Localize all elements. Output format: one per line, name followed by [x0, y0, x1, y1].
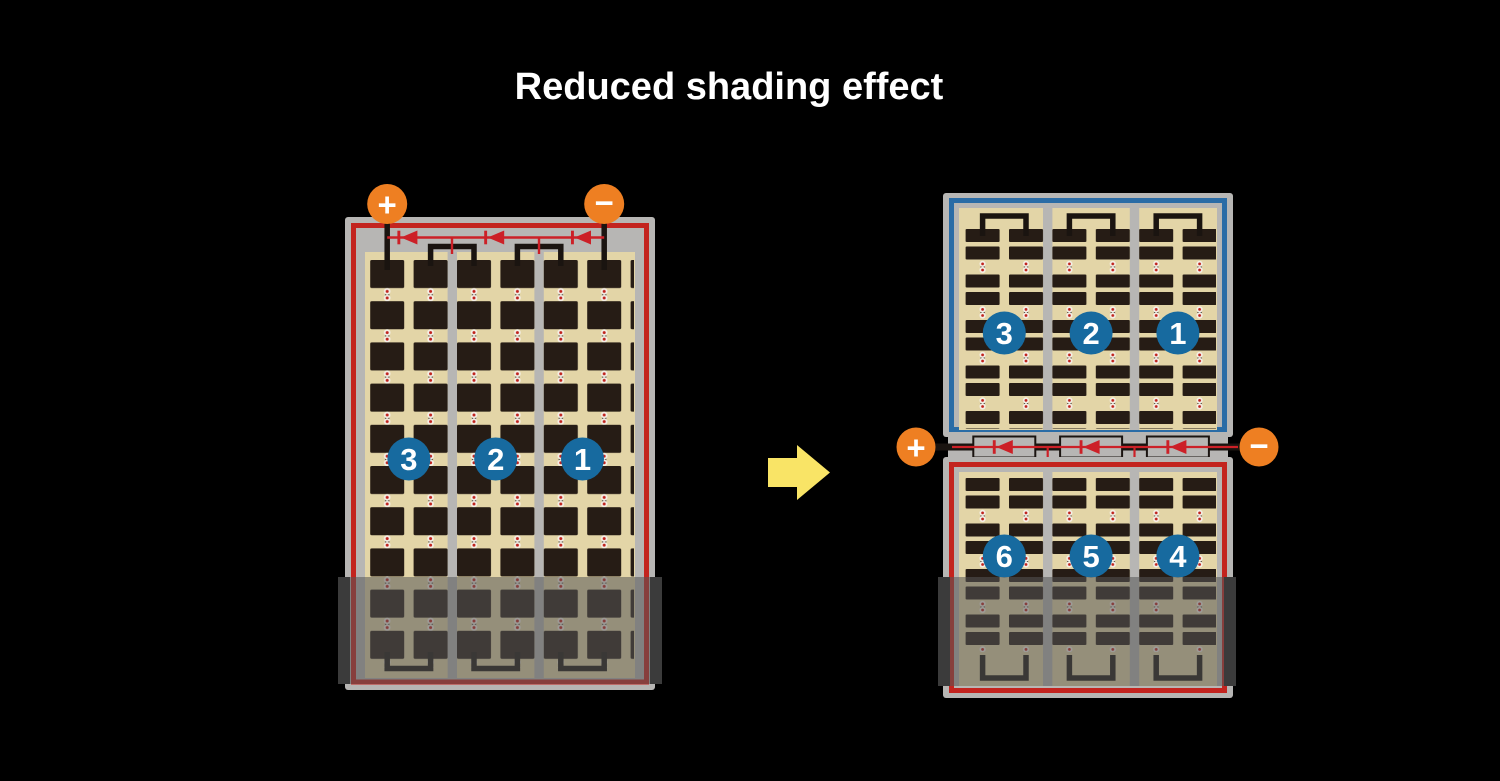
shade-overlay — [338, 577, 662, 684]
badge-label: 6 — [996, 539, 1013, 574]
group-number-badge: 5 — [1070, 535, 1113, 578]
group-number-badge: 3 — [387, 438, 430, 481]
group-number-badge: 4 — [1156, 535, 1199, 578]
minus-sign: − — [1249, 427, 1268, 464]
plus-sign: + — [378, 186, 397, 223]
group-number-badge: 2 — [1070, 312, 1113, 355]
half-cell-module-top: 3 2 1 — [943, 193, 1233, 437]
badge-label: 5 — [1082, 539, 1099, 574]
group-number-badge: 1 — [561, 438, 604, 481]
group-number-badge: 6 — [983, 535, 1026, 578]
full-cell-module: + − 3 2 1 — [338, 184, 662, 690]
badge-label: 1 — [574, 442, 591, 477]
group-number-badge: 2 — [474, 438, 517, 481]
badge-label: 2 — [487, 442, 504, 477]
badge-label: 3 — [996, 316, 1013, 351]
diode-strip — [934, 433, 1242, 460]
shading-diagram: + − 3 2 1 — [0, 0, 1500, 781]
half-cell-module-bottom: 6 5 4 — [938, 457, 1236, 698]
badge-label: 4 — [1169, 539, 1187, 574]
plus-terminal: + — [367, 184, 407, 224]
plus-terminal: + — [897, 428, 936, 467]
plus-sign: + — [906, 429, 925, 466]
badge-label: 3 — [400, 442, 417, 477]
group-number-badge: 3 — [983, 312, 1026, 355]
badge-label: 1 — [1169, 316, 1186, 351]
minus-terminal: − — [584, 184, 624, 224]
group-number-badge: 1 — [1156, 312, 1199, 355]
transform-arrow — [768, 445, 830, 500]
minus-sign: − — [595, 184, 614, 221]
badge-label: 2 — [1082, 316, 1099, 351]
shade-overlay — [938, 577, 1236, 686]
minus-terminal: − — [1240, 427, 1279, 467]
